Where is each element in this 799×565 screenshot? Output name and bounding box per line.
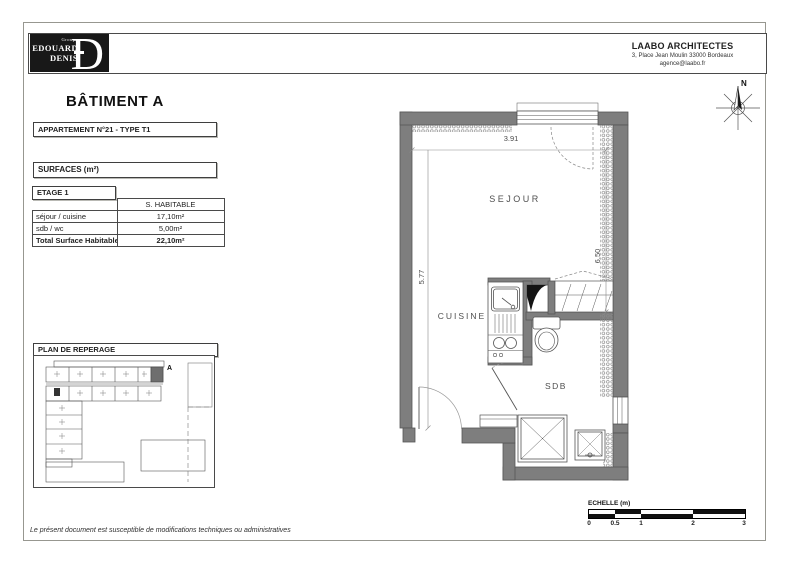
toilet <box>533 317 560 352</box>
architect-name: LAABO ARCHITECTES <box>600 40 765 52</box>
scale-segment <box>615 514 641 518</box>
scale-tick: 3 <box>742 520 746 527</box>
scale-segment <box>589 514 615 518</box>
architect-email: agence@laabo.fr <box>600 60 765 68</box>
surfaces-col-header: S. HABITABLE <box>117 199 224 211</box>
surfaces-title-box: SURFACES (m²) <box>33 162 217 178</box>
surfaces-total-label: Total Surface Habitable <box>33 235 118 247</box>
surfaces-header-empty <box>33 199 118 211</box>
ledge <box>480 415 517 427</box>
kitchen-unit <box>488 282 523 363</box>
surfaces-header-row: S. HABITABLE <box>33 199 225 211</box>
architect-address: 3, Place Jean Moulin 33000 Bordeaux <box>600 52 765 60</box>
architect-block: LAABO ARCHITECTES 3, Place Jean Moulin 3… <box>600 40 765 68</box>
disclaimer-text: Le présent document est susceptible de m… <box>30 527 291 534</box>
surfaces-row-label: sdb / wc <box>33 223 118 235</box>
shower <box>518 415 567 462</box>
surfaces-table: S. HABITABLE séjour / cuisine 17,10m² sd… <box>32 198 225 247</box>
surfaces-row-label: séjour / cuisine <box>33 211 118 223</box>
dimension-height-right: 6.50 <box>593 239 603 273</box>
compass-north-label: N <box>741 79 747 88</box>
scale-tick: 2 <box>691 520 695 527</box>
scale-bar: ECHELLE (m) 0 0.5 1 2 3 <box>588 500 758 536</box>
compass: N <box>712 80 768 132</box>
surfaces-row-value: 5,00m² <box>117 223 224 235</box>
scale-segment <box>693 514 745 518</box>
scale-tick: 0 <box>587 520 591 527</box>
edouard-denis-logo: Groupe EDOUARD DENIS D <box>30 34 109 72</box>
scale-bar-ticks: 0 0.5 1 2 3 <box>588 519 758 528</box>
site-unit-marks <box>54 371 152 454</box>
dimension-height-left: 5.77 <box>417 260 427 294</box>
surfaces-row-value: 17,10m² <box>117 211 224 223</box>
compass-icon <box>712 80 768 132</box>
room-label-sejour: SEJOUR <box>475 194 555 204</box>
siteplan-building-a-label: A <box>167 365 172 372</box>
room-label-cuisine: CUISINE <box>422 311 502 321</box>
scale-bar-segments <box>588 509 746 519</box>
highlighted-building-a <box>151 367 163 382</box>
scale-segment <box>641 514 693 518</box>
floor-plan-drawing <box>390 98 640 493</box>
surfaces-total-value: 22,10m² <box>117 235 224 247</box>
surfaces-total-row: Total Surface Habitable 22,10m² <box>33 235 225 247</box>
scale-tick: 1 <box>639 520 643 527</box>
washbasin <box>575 430 605 460</box>
logo-monogram-crossbar <box>74 51 84 54</box>
apartment-title-box: APPARTEMENT N°21 - TYPE T1 <box>33 122 217 137</box>
dimension-width: 3.91 <box>492 134 530 143</box>
siteplan-box: A <box>33 355 215 488</box>
duct <box>527 285 548 312</box>
building-title: BÂTIMENT A <box>66 93 164 110</box>
table-row: sdb / wc 5,00m² <box>33 223 225 235</box>
scale-tick: 0.5 <box>610 520 619 527</box>
table-row: séjour / cuisine 17,10m² <box>33 211 225 223</box>
siteplan-drawing <box>34 356 214 487</box>
room-label-sdb: SDB <box>536 381 576 391</box>
scale-bar-title: ECHELLE (m) <box>588 500 758 507</box>
